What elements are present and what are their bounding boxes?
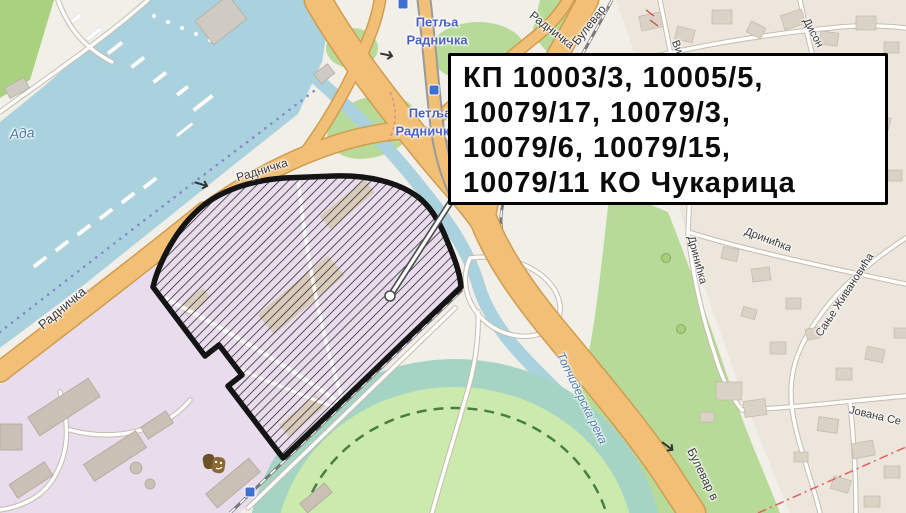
callout-line-4: 10079/11 КО Чукарица [463,166,873,201]
callout-line-1: КП 10003/3, 10005/5, [463,61,873,96]
callout-line-3: 10079/6, 10079/15, [463,131,873,166]
callout-line-2: 10079/17, 10079/3, [463,96,873,131]
parcel-callout-box: КП 10003/3, 10005/5, 10079/17, 10079/3, … [448,53,888,205]
map-viewport[interactable]: АдаРадничкаРадничкаРадничкаПетљаРадничка… [0,0,906,513]
